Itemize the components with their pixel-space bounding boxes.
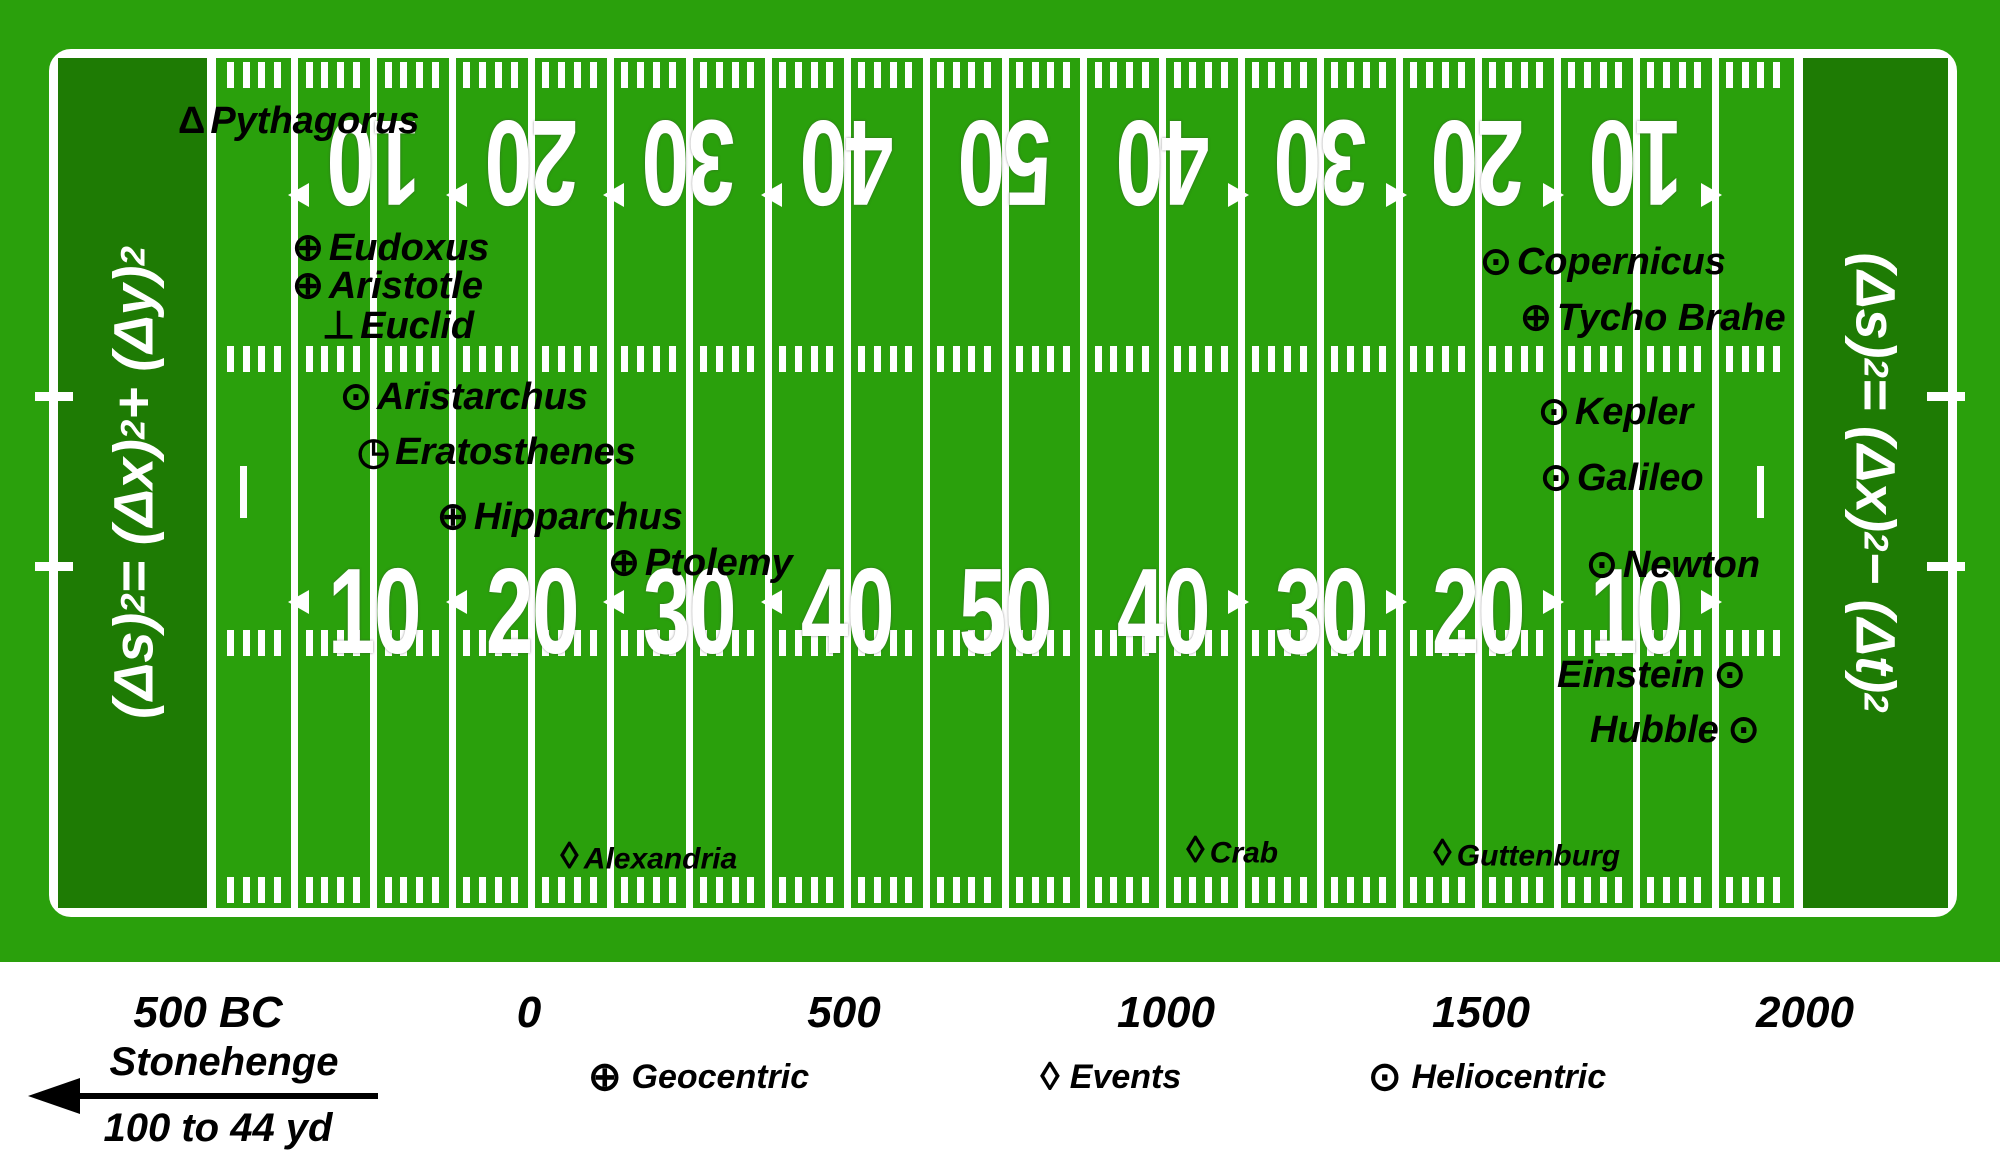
hash-mark (1300, 62, 1307, 88)
hash-mark (1410, 346, 1417, 372)
hash-mark (1252, 877, 1259, 903)
hash-mark (1600, 877, 1607, 903)
person-name: Pythagorus (210, 100, 419, 142)
event-diamond-icon: ◊ (1186, 830, 1205, 872)
hash-mark (1663, 877, 1670, 903)
person-name: Eudoxus (329, 227, 489, 269)
event-name: Guttenburg (1457, 840, 1620, 873)
formula-term: = (Δx) (1844, 378, 1909, 532)
person-ptolemy: ⊕Ptolemy (608, 543, 793, 583)
hash-mark (653, 877, 660, 903)
hash-mark (385, 62, 392, 88)
timeline-label-1000: 1000 (1117, 990, 1215, 1036)
five-yard-line (923, 58, 930, 908)
hash-mark (1647, 877, 1654, 903)
yard-arrow-icon (1701, 183, 1722, 207)
yard-arrow-icon (446, 590, 467, 614)
hash-mark (432, 62, 439, 88)
yard-arrow-icon (446, 183, 467, 207)
hash-mark (984, 877, 991, 903)
event-name: Alexandria (584, 843, 737, 876)
yard-number-30: 30 (1274, 116, 1366, 210)
person-newton: ⊙Newton (1586, 545, 1760, 585)
hash-mark (1189, 62, 1196, 88)
hash-mark (1521, 346, 1528, 372)
hash-mark (653, 62, 660, 88)
hash-mark (968, 346, 975, 372)
hash-mark (1221, 877, 1228, 903)
hash-mark (1032, 346, 1039, 372)
event-alexandria: ◊Alexandria (560, 841, 737, 876)
geocentric-icon: ⊕ (292, 265, 324, 307)
hash-mark (479, 62, 486, 88)
heliocentric-icon: ⊙ (340, 376, 372, 418)
hash-mark (937, 346, 944, 372)
hash-mark (1331, 346, 1338, 372)
hash-mark (1379, 62, 1386, 88)
hash-mark (1142, 877, 1149, 903)
timeline-label-500-bc: 500 BC (133, 990, 282, 1036)
hash-mark (1347, 62, 1354, 88)
geocentric-icon: ⊕ (1520, 297, 1552, 339)
hash-mark (1063, 630, 1070, 656)
hash-mark (321, 877, 328, 903)
yard-number-40: 40 (801, 116, 893, 210)
hash-mark (621, 630, 628, 656)
hash-mark (1584, 346, 1591, 372)
hash-mark (1600, 62, 1607, 88)
hash-mark (1442, 346, 1449, 372)
hash-mark (700, 62, 707, 88)
formula-term: = (Δx) (101, 439, 166, 593)
hash-mark (463, 346, 470, 372)
hash-mark (353, 62, 360, 88)
hash-mark (1458, 62, 1465, 88)
hash-mark (1142, 346, 1149, 372)
hash-mark (747, 877, 754, 903)
legend-heliocentric: ⊙Heliocentric (1368, 1059, 1606, 1095)
geocentric-icon: ⊕ (437, 496, 469, 538)
person-name: Tycho Brahe (1557, 297, 1786, 339)
yard-arrow-icon (1386, 183, 1407, 207)
hash-mark (1568, 877, 1575, 903)
hash-mark (716, 877, 723, 903)
hash-mark (385, 346, 392, 372)
hash-mark (511, 346, 518, 372)
person-aristarchus: ⊙Aristarchus (340, 377, 588, 417)
hash-mark (1363, 62, 1370, 88)
hash-mark (463, 877, 470, 903)
formula-term: − (Δt) (1844, 551, 1909, 693)
timeline-label-2000: 2000 (1756, 990, 1854, 1036)
hash-mark (1521, 877, 1528, 903)
hash-mark (953, 346, 960, 372)
hash-mark (653, 346, 660, 372)
hash-mark (574, 62, 581, 88)
hash-mark (511, 62, 518, 88)
yard-number-40: 40 (801, 564, 893, 658)
yard-number-20: 20 (1432, 564, 1524, 658)
formula-term: + (Δy) (101, 266, 166, 420)
hash-mark (795, 62, 802, 88)
hash-mark (1047, 62, 1054, 88)
hash-mark (1126, 62, 1133, 88)
perpendicular-icon: ⊥ (322, 305, 355, 347)
hash-mark (1505, 877, 1512, 903)
person-kepler: ⊙Kepler (1538, 392, 1693, 432)
hash-mark (905, 877, 912, 903)
person-name: Euclid (360, 305, 474, 347)
hash-mark (621, 346, 628, 372)
hash-mark (1300, 877, 1307, 903)
hash-mark (1379, 630, 1386, 656)
person-name: Newton (1623, 544, 1760, 586)
hash-mark (1363, 346, 1370, 372)
yard-number-10: 10 (1590, 116, 1682, 210)
hash-mark (1205, 62, 1212, 88)
legend-events: ◊Events (1040, 1059, 1181, 1095)
hash-mark (637, 62, 644, 88)
hash-mark (937, 630, 944, 656)
hash-mark (1032, 877, 1039, 903)
hash-mark (1536, 877, 1543, 903)
hash-mark (1126, 877, 1133, 903)
hash-mark (1773, 630, 1780, 656)
yard-arrow-icon (1386, 590, 1407, 614)
hash-mark (1757, 630, 1764, 656)
hash-mark (1379, 346, 1386, 372)
hash-mark (1426, 62, 1433, 88)
hash-mark (463, 62, 470, 88)
hash-mark (1331, 877, 1338, 903)
timeline-label-0: 0 (517, 990, 541, 1036)
hash-mark (1126, 346, 1133, 372)
yard-arrow-icon (603, 590, 624, 614)
hash-mark (1331, 62, 1338, 88)
person-name: Copernicus (1517, 241, 1726, 283)
heliocentric-icon: ⊙ (1540, 457, 1572, 499)
hash-mark (353, 877, 360, 903)
person-name: Hubble (1590, 709, 1719, 751)
hash-mark (826, 62, 833, 88)
hash-mark (400, 877, 407, 903)
hash-mark (321, 346, 328, 372)
heliocentric-icon: ⊙ (1728, 709, 1760, 751)
hash-mark (1174, 877, 1181, 903)
hash-mark (1584, 877, 1591, 903)
yard-number-20: 20 (485, 116, 577, 210)
hash-mark (1773, 62, 1780, 88)
triangle-icon: Δ (178, 100, 205, 142)
hash-mark (1252, 62, 1259, 88)
hash-mark (243, 630, 250, 656)
hash-mark (1615, 346, 1622, 372)
hash-mark (1726, 630, 1733, 656)
yard-arrow-icon (1701, 590, 1722, 614)
legend-events-label: Events (1070, 1058, 1182, 1096)
hash-mark (258, 877, 265, 903)
hash-mark (1742, 62, 1749, 88)
hash-mark (227, 346, 234, 372)
hash-mark (432, 877, 439, 903)
hash-mark (937, 62, 944, 88)
hash-mark (984, 62, 991, 88)
hash-mark (495, 877, 502, 903)
yard-number-20: 20 (1432, 116, 1524, 210)
hash-mark (274, 630, 281, 656)
heliocentric-icon: ⊙ (1586, 544, 1618, 586)
hash-mark (1174, 346, 1181, 372)
hash-mark (1410, 630, 1417, 656)
hash-mark (1489, 62, 1496, 88)
formula-term: (Δs) (101, 613, 166, 719)
hash-mark (826, 346, 833, 372)
hash-mark (1521, 62, 1528, 88)
hash-mark (1221, 62, 1228, 88)
goal-line (207, 58, 216, 908)
hash-mark (416, 62, 423, 88)
person-eudoxus: ⊕Eudoxus (292, 228, 489, 268)
person-name: Ptolemy (645, 542, 793, 584)
right-endzone: (Δs)2 = (Δx)2 − (Δt)2 (1803, 58, 1948, 908)
hash-mark (1647, 346, 1654, 372)
hash-mark (1663, 62, 1670, 88)
hash-mark (1742, 346, 1749, 372)
timeline-label-500: 500 (807, 990, 880, 1036)
legend-geocentric-label: Geocentric (632, 1058, 810, 1096)
hash-mark (732, 62, 739, 88)
yard-arrow-icon (1543, 590, 1564, 614)
hash-mark (337, 346, 344, 372)
hash-mark (1694, 346, 1701, 372)
heliocentric-icon: ⊙ (1480, 241, 1512, 283)
hash-mark (511, 877, 518, 903)
hash-mark (890, 62, 897, 88)
hash-mark (274, 62, 281, 88)
hash-mark (1584, 62, 1591, 88)
hash-mark (590, 630, 597, 656)
hash-mark (227, 62, 234, 88)
hash-mark (1536, 62, 1543, 88)
hash-mark (463, 630, 470, 656)
hash-mark (1757, 62, 1764, 88)
hash-mark (858, 877, 865, 903)
hash-mark (558, 346, 565, 372)
hash-mark (1205, 877, 1212, 903)
sideline-tick (35, 562, 73, 571)
hash-mark (1600, 346, 1607, 372)
hash-mark (1615, 62, 1622, 88)
hash-mark (779, 877, 786, 903)
yard-number-50: 50 (959, 564, 1051, 658)
yard-number-30: 30 (1274, 564, 1366, 658)
hash-mark (353, 346, 360, 372)
hash-mark (243, 877, 250, 903)
hash-mark (1268, 346, 1275, 372)
hash-mark (1347, 877, 1354, 903)
person-name: Einstein (1557, 654, 1705, 696)
hash-mark (1742, 630, 1749, 656)
stonehenge-label: Stonehenge (90, 1040, 358, 1085)
hash-mark (1095, 877, 1102, 903)
hash-mark (1536, 630, 1543, 656)
hash-mark (826, 877, 833, 903)
yard-arrow-icon (1543, 183, 1564, 207)
hash-mark (1568, 62, 1575, 88)
hash-mark (1047, 346, 1054, 372)
hash-mark (479, 877, 486, 903)
hash-mark (432, 630, 439, 656)
event-crab: ◊Crab (1186, 835, 1278, 870)
hash-mark (747, 346, 754, 372)
hash-mark (385, 877, 392, 903)
timeline-football-field-diagram: (Δs)2 = (Δx)2+ (Δy)2 (Δs)2 = (Δx)2 − (Δt… (0, 0, 2000, 1160)
hash-mark (937, 877, 944, 903)
hash-mark (1095, 346, 1102, 372)
yard-arrow-icon (288, 590, 309, 614)
hash-mark (1205, 346, 1212, 372)
sideline-tick (1927, 392, 1965, 401)
hash-mark (874, 877, 881, 903)
hash-mark (1568, 630, 1575, 656)
yard-arrow-icon (761, 183, 782, 207)
person-tycho-brahe: ⊕Tycho Brahe (1520, 298, 1786, 338)
hash-mark (306, 877, 313, 903)
hash-mark (1347, 346, 1354, 372)
hash-mark (747, 630, 754, 656)
hash-mark (700, 346, 707, 372)
hash-mark (1252, 346, 1259, 372)
event-guttenburg: ◊Guttenburg (1433, 838, 1620, 873)
hash-mark (1095, 62, 1102, 88)
hash-mark (1773, 877, 1780, 903)
yard-number-50: 50 (959, 116, 1051, 210)
person-name: Galileo (1577, 457, 1704, 499)
hash-mark (1679, 62, 1686, 88)
hash-mark (243, 346, 250, 372)
hash-mark (1458, 346, 1465, 372)
hash-mark (1189, 346, 1196, 372)
hash-mark (621, 62, 628, 88)
hash-mark (669, 62, 676, 88)
event-diamond-icon: ◊ (560, 836, 579, 878)
hash-mark (306, 346, 313, 372)
hash-mark (1110, 62, 1117, 88)
hash-mark (1032, 62, 1039, 88)
hash-mark (637, 346, 644, 372)
hash-mark (1773, 346, 1780, 372)
hash-mark (1568, 346, 1575, 372)
hash-mark (1142, 62, 1149, 88)
hash-mark (953, 62, 960, 88)
hash-mark (716, 346, 723, 372)
person-eratosthenes: ◷Eratosthenes (357, 432, 636, 472)
hash-mark (1300, 346, 1307, 372)
hash-mark (1016, 877, 1023, 903)
hash-mark (227, 630, 234, 656)
hash-mark (1063, 62, 1070, 88)
hash-mark (1268, 877, 1275, 903)
hash-mark (1363, 877, 1370, 903)
hash-mark (558, 62, 565, 88)
geocentric-icon: ⊕ (608, 542, 640, 584)
hash-mark (1489, 877, 1496, 903)
hash-mark (306, 630, 313, 656)
hash-mark (306, 62, 313, 88)
hash-mark (574, 346, 581, 372)
hash-mark (558, 877, 565, 903)
person-einstein: Einstein⊙ (1557, 655, 1746, 695)
hash-mark (1252, 630, 1259, 656)
hash-mark (590, 877, 597, 903)
hash-mark (416, 877, 423, 903)
person-copernicus: ⊙Copernicus (1480, 242, 1726, 282)
formula-term: (Δs) (1844, 252, 1909, 358)
hash-mark (874, 62, 881, 88)
hash-mark (1505, 62, 1512, 88)
hash-mark (968, 877, 975, 903)
hash-mark (953, 877, 960, 903)
hash-mark (779, 62, 786, 88)
yard-arrow-icon (603, 183, 624, 207)
hash-mark (1663, 346, 1670, 372)
person-pythagorus: ΔPythagorus (178, 101, 419, 141)
person-name: Hipparchus (474, 496, 683, 538)
hash-mark (1694, 62, 1701, 88)
hash-mark (905, 346, 912, 372)
hash-mark (1442, 62, 1449, 88)
hash-mark (1442, 877, 1449, 903)
hash-mark (1110, 346, 1117, 372)
hash-mark (1742, 877, 1749, 903)
five-yard-line (1080, 58, 1087, 908)
legend-heliocentric-label: Heliocentric (1412, 1058, 1607, 1096)
hash-mark (984, 346, 991, 372)
hash-mark (243, 62, 250, 88)
hash-mark (1647, 62, 1654, 88)
person-name: Aristotle (329, 265, 483, 307)
hash-mark (732, 877, 739, 903)
yard-arrow-icon (288, 183, 309, 207)
hash-mark (1410, 877, 1417, 903)
hash-mark (1063, 877, 1070, 903)
heliocentric-icon: ⊙ (1714, 654, 1746, 696)
hash-mark (542, 346, 549, 372)
goal-area-mark (240, 466, 247, 518)
hash-mark (1284, 877, 1291, 903)
hash-mark (542, 62, 549, 88)
hash-mark (258, 346, 265, 372)
hash-mark (1174, 62, 1181, 88)
yard-arrow-icon (1228, 183, 1249, 207)
legend-geocentric: ⊕Geocentric (588, 1059, 809, 1095)
person-hipparchus: ⊕Hipparchus (437, 497, 683, 537)
hash-mark (1505, 346, 1512, 372)
hash-mark (1757, 877, 1764, 903)
hash-mark (747, 62, 754, 88)
hash-mark (669, 346, 676, 372)
hash-mark (905, 62, 912, 88)
scale-label: 100 to 44 yd (78, 1106, 358, 1151)
hash-mark (1458, 877, 1465, 903)
hash-mark (400, 62, 407, 88)
hash-mark (574, 877, 581, 903)
hash-mark (1410, 62, 1417, 88)
hash-mark (732, 346, 739, 372)
hash-mark (779, 346, 786, 372)
hash-mark (1726, 346, 1733, 372)
person-name: Eratosthenes (395, 431, 636, 473)
